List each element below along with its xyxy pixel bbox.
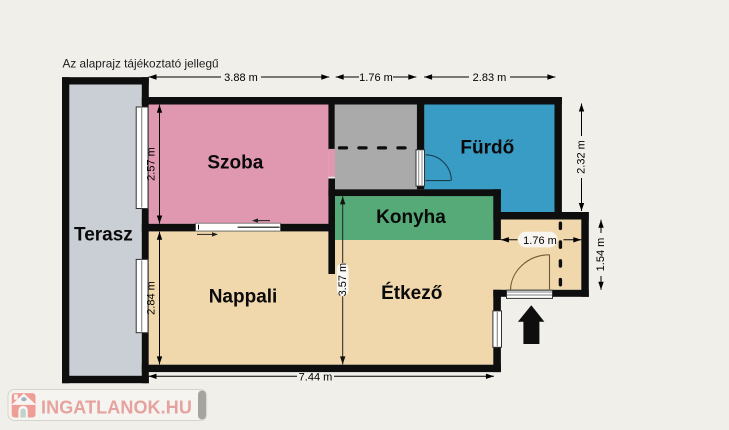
svg-text:2.32 m: 2.32 m (576, 140, 588, 174)
svg-text:3.88 m: 3.88 m (224, 72, 258, 84)
svg-text:Étkező: Étkező (381, 282, 442, 304)
svg-text:1.76 m: 1.76 m (359, 72, 393, 84)
svg-text:INGATLANOK.HU: INGATLANOK.HU (41, 398, 192, 418)
svg-text:1.76 m: 1.76 m (523, 235, 557, 247)
svg-text:Fürdő: Fürdő (460, 138, 514, 159)
svg-text:Az alaprajz tájékoztató jelleg: Az alaprajz tájékoztató jellegű (63, 57, 220, 71)
svg-text:1.54 m: 1.54 m (595, 238, 607, 272)
svg-text:2.84 m: 2.84 m (146, 281, 158, 315)
svg-text:2.57 m: 2.57 m (146, 147, 158, 181)
svg-text:2.83 m: 2.83 m (473, 72, 507, 84)
svg-text:3.57 m: 3.57 m (337, 263, 349, 297)
svg-text:Nappali: Nappali (209, 287, 278, 308)
svg-text:Konyha: Konyha (376, 207, 446, 228)
svg-text:Szoba: Szoba (207, 153, 263, 174)
svg-text:Terasz: Terasz (74, 224, 133, 245)
svg-text:7.44 m: 7.44 m (299, 371, 333, 383)
